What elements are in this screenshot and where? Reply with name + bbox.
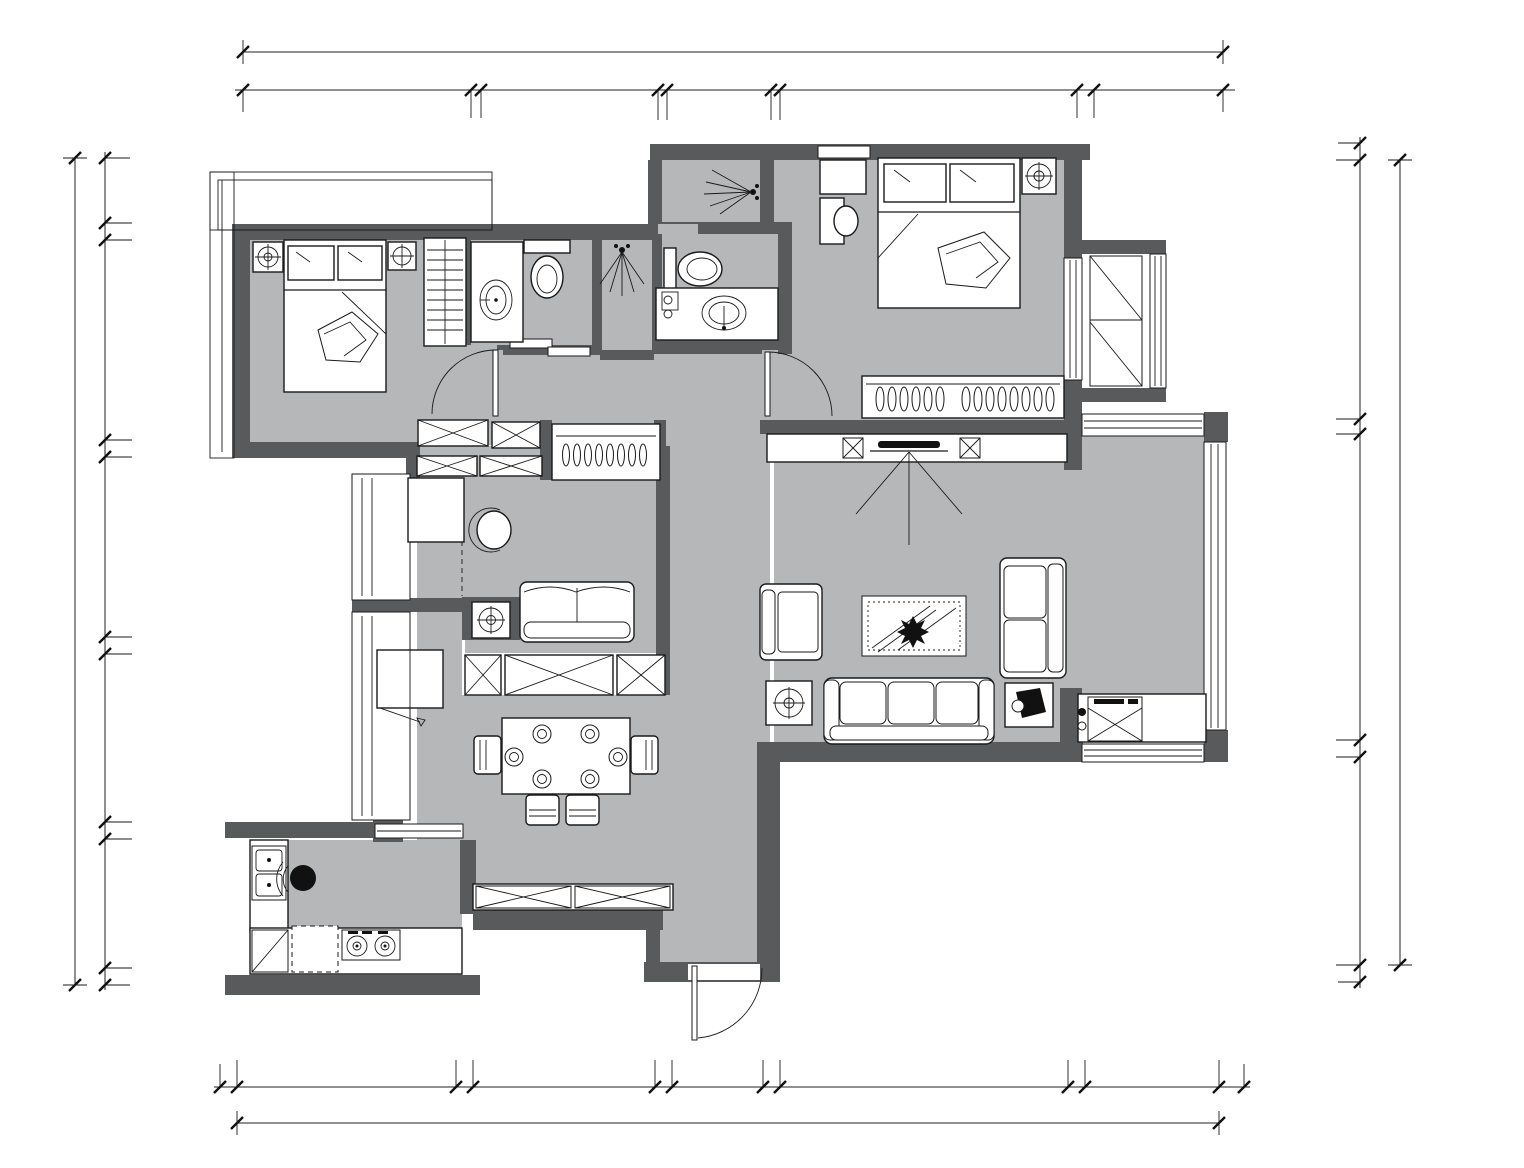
- floor-plan: [0, 0, 1524, 1168]
- stove: [342, 930, 400, 960]
- armchair: [760, 584, 822, 660]
- balcony-laundry: [1078, 694, 1206, 742]
- side-table: [766, 681, 812, 725]
- pipe-symbol: [472, 602, 510, 638]
- bed: [284, 240, 386, 392]
- ceiling-symbol: [388, 242, 416, 270]
- kitchen-sink: [252, 846, 286, 900]
- dimension-left: [63, 152, 132, 991]
- rug: [862, 596, 966, 656]
- loveseat: [1000, 558, 1066, 678]
- ceiling-symbol: [1022, 158, 1056, 194]
- sofa: [824, 678, 994, 744]
- nightstand: [820, 160, 866, 194]
- wardrobe: [424, 238, 466, 346]
- vanity-sink: [656, 288, 778, 340]
- dimension-bottom: [214, 1060, 1250, 1135]
- washing-machine: [1088, 697, 1142, 741]
- wardrobe: [862, 376, 1064, 418]
- plant-table: [1005, 683, 1053, 727]
- bed: [878, 158, 1020, 308]
- master-bedroom-window: [1064, 258, 1082, 380]
- master-top-window: [818, 146, 870, 158]
- entry-door: [688, 964, 762, 1040]
- shower-opening: [658, 224, 698, 234]
- ceiling-symbol: [253, 242, 283, 272]
- corner-shelf: [252, 930, 288, 972]
- speaker-box-icon: [960, 438, 980, 458]
- closet-ne: [1090, 254, 1166, 388]
- dishwasher: [292, 926, 338, 972]
- vanity-sink: [471, 242, 523, 342]
- study-wardrobe: [552, 424, 660, 480]
- shoe-cabinet: [473, 884, 673, 910]
- speaker-box-icon: [843, 438, 863, 458]
- dimension-top: [235, 40, 1235, 120]
- bay-window-dining: [352, 612, 410, 820]
- study-sofa: [520, 582, 634, 642]
- wine-cabinet: [465, 655, 665, 695]
- dimension-right: [1336, 137, 1412, 988]
